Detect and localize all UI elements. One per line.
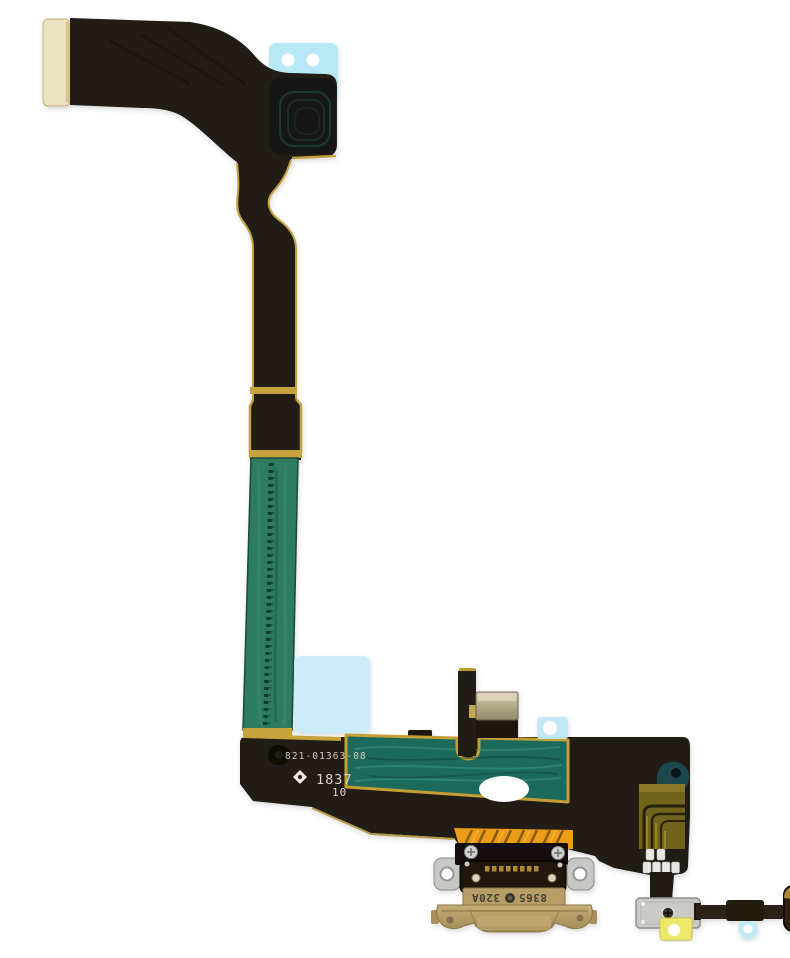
gold-trace-area (639, 784, 685, 849)
connector-flange (431, 905, 597, 932)
emi-green-strip (243, 458, 298, 736)
cyan-ring-sticker (738, 919, 758, 939)
yellow-sticker (660, 918, 692, 940)
connector-spec-text: 320A (472, 891, 501, 904)
adhesive-sticker-large (294, 656, 370, 733)
sticker-hole (307, 54, 320, 67)
gold-band-upper (250, 387, 297, 394)
flange-hole-left (447, 917, 454, 924)
adhesive-sticker-small (537, 717, 568, 739)
microphone-module (784, 886, 790, 931)
board-connector-tab (43, 19, 73, 106)
screw-left (465, 846, 478, 859)
round-pad-right (548, 874, 556, 882)
ear-hole-right (574, 868, 587, 881)
inductor-coil-pattern (270, 78, 336, 154)
sticker-hole (543, 721, 557, 735)
patch-oval-hole (479, 776, 529, 802)
sticker-hole (282, 54, 295, 67)
flex-cable-illustration: 821-01363-08 1837 10 (40, 16, 790, 942)
connector-model-text: 8365 (519, 891, 548, 904)
product-photo: 821-01363-08 1837 10 (40, 16, 790, 942)
diamond-icon-center (298, 775, 302, 779)
flange-hole-right (577, 915, 584, 922)
round-pad-left (472, 874, 480, 882)
revision-text: 10 (332, 786, 347, 799)
part-number-text: 821-01363-08 (285, 751, 367, 762)
ear-hole-left (441, 868, 454, 881)
screw-right (552, 847, 565, 860)
bracket-screw (662, 907, 674, 919)
gold-band-lower (249, 450, 302, 458)
ink-blob-center (275, 751, 284, 759)
